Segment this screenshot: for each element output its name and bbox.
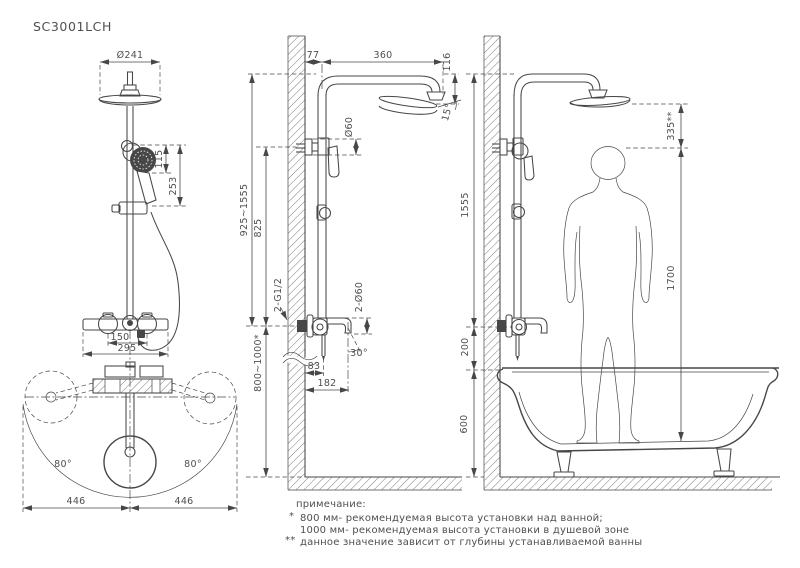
top-connector xyxy=(120,72,140,96)
model-code: SC3001LCH xyxy=(33,19,112,34)
dim-clearances-install: 335** 1700 xyxy=(626,104,688,441)
svg-text:446: 446 xyxy=(66,496,85,507)
svg-text:825: 825 xyxy=(253,218,264,237)
dim-mixer-front: 150 295 xyxy=(83,332,168,357)
note: примечание: * 800 мм- рекомендуемая высо… xyxy=(285,499,642,548)
installation-view: 1555 200 600 335** 1700 xyxy=(459,36,780,490)
note-line-1: 800 мм- рекомендуемая высота установки н… xyxy=(300,513,603,524)
svg-text:116: 116 xyxy=(442,52,453,71)
svg-text:335**: 335** xyxy=(666,111,677,140)
mixer-plan-view: 446 446 80° 80° xyxy=(23,362,237,512)
side-view: 15° 77 360 116 xyxy=(239,36,462,490)
svg-text:80°: 80° xyxy=(184,459,202,470)
shower-column-side xyxy=(318,76,445,318)
svg-text:600: 600 xyxy=(459,414,470,433)
front-view: Ø241 115 253 xyxy=(23,50,237,512)
svg-text:1555: 1555 xyxy=(460,192,471,217)
svg-text:360: 360 xyxy=(373,50,392,61)
bathtub xyxy=(497,368,779,477)
svg-text:80°: 80° xyxy=(54,459,72,470)
svg-text:115: 115 xyxy=(154,149,165,168)
svg-text:Ø241: Ø241 xyxy=(117,50,144,61)
svg-text:446: 446 xyxy=(174,496,193,507)
dim-head-drop: 116 xyxy=(248,52,459,104)
hand-shower-side xyxy=(317,146,339,220)
svg-text:150: 150 xyxy=(110,332,129,343)
wall-hatch-right xyxy=(484,36,500,490)
svg-text:295: 295 xyxy=(117,343,136,354)
note-heading: примечание: xyxy=(296,499,366,510)
svg-text:253: 253 xyxy=(168,176,179,195)
svg-text:200: 200 xyxy=(460,337,471,356)
svg-text:182: 182 xyxy=(317,378,336,389)
svg-text:83: 83 xyxy=(308,361,321,372)
note-marker-1: * xyxy=(289,511,294,522)
shower-column-install xyxy=(514,74,630,318)
wall-hatch xyxy=(288,36,305,490)
note-marker-2: ** xyxy=(285,535,295,546)
note-line-3: данное значение зависит от глубины устан… xyxy=(300,537,642,548)
svg-text:Ø60: Ø60 xyxy=(344,117,355,137)
head-tilt-annotation: 15° xyxy=(438,100,461,122)
dim-top-offsets: 77 360 xyxy=(305,50,443,94)
svg-text:30°: 30° xyxy=(350,348,368,359)
svg-text:800~1000*: 800~1000* xyxy=(253,334,264,392)
supply-thread-label: 2-G1/2 xyxy=(273,278,287,320)
svg-text:2-Ø60: 2-Ø60 xyxy=(354,282,365,313)
spout-swing-right xyxy=(172,372,236,424)
floor-hatch-right xyxy=(500,477,772,490)
svg-text:1700: 1700 xyxy=(666,265,677,290)
svg-text:77: 77 xyxy=(307,50,320,61)
human-figure xyxy=(564,147,653,444)
mixer-install xyxy=(497,315,547,361)
svg-text:2-G1/2: 2-G1/2 xyxy=(273,278,284,312)
technical-drawing: SC3001LCH Ø241 xyxy=(0,0,800,568)
drawing-canvas: SC3001LCH Ø241 xyxy=(0,0,800,568)
dim-spout-offsets: 83 182 xyxy=(305,358,349,390)
note-line-2: 1000 мм- рекомендуемая высота установки … xyxy=(300,525,629,536)
floor-hatch xyxy=(305,477,462,490)
svg-text:925~1555: 925~1555 xyxy=(239,184,250,237)
